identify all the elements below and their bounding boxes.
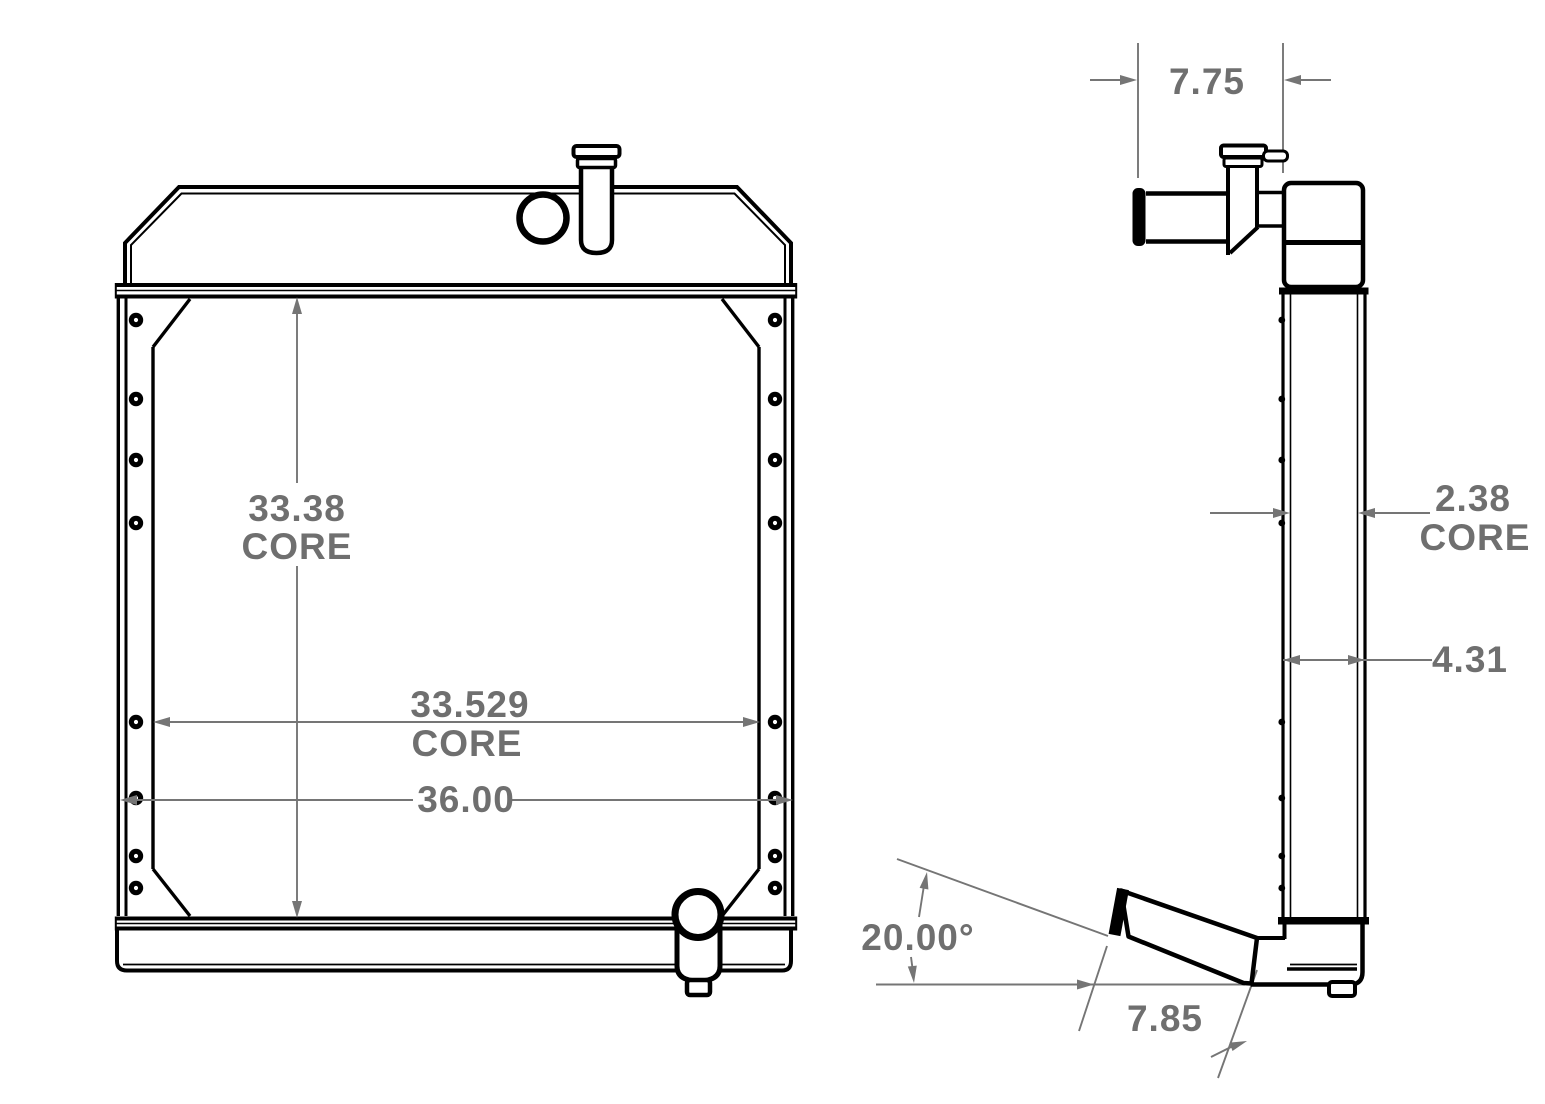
core-band-top (1279, 288, 1369, 295)
inlet-tube-bead (1133, 188, 1146, 246)
dim-tank-depth: 7.75 (1090, 61, 1331, 102)
dim-outlet-length-value: 7.85 (1127, 998, 1203, 1039)
dim-core-height: 33.38 CORE (242, 297, 353, 918)
dim-core-width-value: 33.529 (410, 684, 529, 725)
side-bracket-right (722, 299, 793, 917)
dim-overall-width-value: 36.00 (417, 779, 515, 820)
dim-core-width: 33.529 CORE (153, 684, 760, 764)
front-view (115, 146, 797, 995)
filler-neck (581, 167, 612, 253)
drain-plug (687, 980, 710, 995)
core-side (1283, 295, 1365, 918)
top-tank-inner-line (131, 194, 785, 284)
dim-core-depth-value: 2.38 (1435, 478, 1511, 519)
side-bracket-left (118, 299, 190, 917)
bolt-holes-right (768, 313, 782, 895)
dim-tank-depth-value: 7.75 (1169, 61, 1245, 102)
drawing-canvas: 33.38 CORE 33.529 CORE 36.00 7.75 2.38 C… (0, 0, 1545, 1104)
top-tank-outline (125, 187, 791, 283)
dim-overall-depth: 4.31 (1283, 639, 1508, 680)
header-band-top (115, 283, 797, 299)
filler-cap-side-lower (1224, 158, 1262, 167)
filler-neck-side (1228, 166, 1284, 255)
filler-cap-lever (1264, 151, 1288, 161)
dim-core-depth: 2.38 CORE (1210, 478, 1530, 558)
dim-overall-width: 36.00 (120, 779, 793, 820)
bottom-tank-side (1251, 925, 1363, 985)
overflow-hole (520, 195, 567, 242)
filler-cap-lower-bar (578, 159, 616, 168)
outlet-tube-bead (1115, 889, 1124, 935)
dim-overall-depth-value: 4.31 (1432, 639, 1508, 680)
dim-outlet-angle-value: 20.00° (861, 917, 974, 958)
ext-line-outlet-1 (1079, 946, 1107, 1031)
filler-cap (574, 146, 620, 157)
dim-core-depth-label: CORE (1420, 517, 1531, 558)
dim-core-width-label: CORE (412, 723, 523, 764)
dim-outlet-angle: 20.00° (861, 872, 1094, 990)
drain-plug-side (1329, 982, 1355, 996)
dim-core-height-value: 33.38 (248, 488, 346, 529)
side-view (1115, 146, 1370, 997)
dim-core-height-label: CORE (242, 526, 353, 567)
outlet-ring (675, 892, 721, 938)
radiator-drawing: 33.38 CORE 33.529 CORE 36.00 7.75 2.38 C… (0, 0, 1545, 1104)
top-tank-side (1284, 183, 1363, 287)
filler-cap-side (1221, 146, 1266, 158)
dim-outlet-length: 7.85 (1127, 998, 1247, 1057)
bolt-holes-left (129, 313, 143, 895)
bolt-hole (129, 313, 143, 895)
bolt-hole (768, 313, 782, 895)
core-band-bottom (1278, 917, 1369, 925)
outlet-tube-side (1121, 891, 1257, 984)
